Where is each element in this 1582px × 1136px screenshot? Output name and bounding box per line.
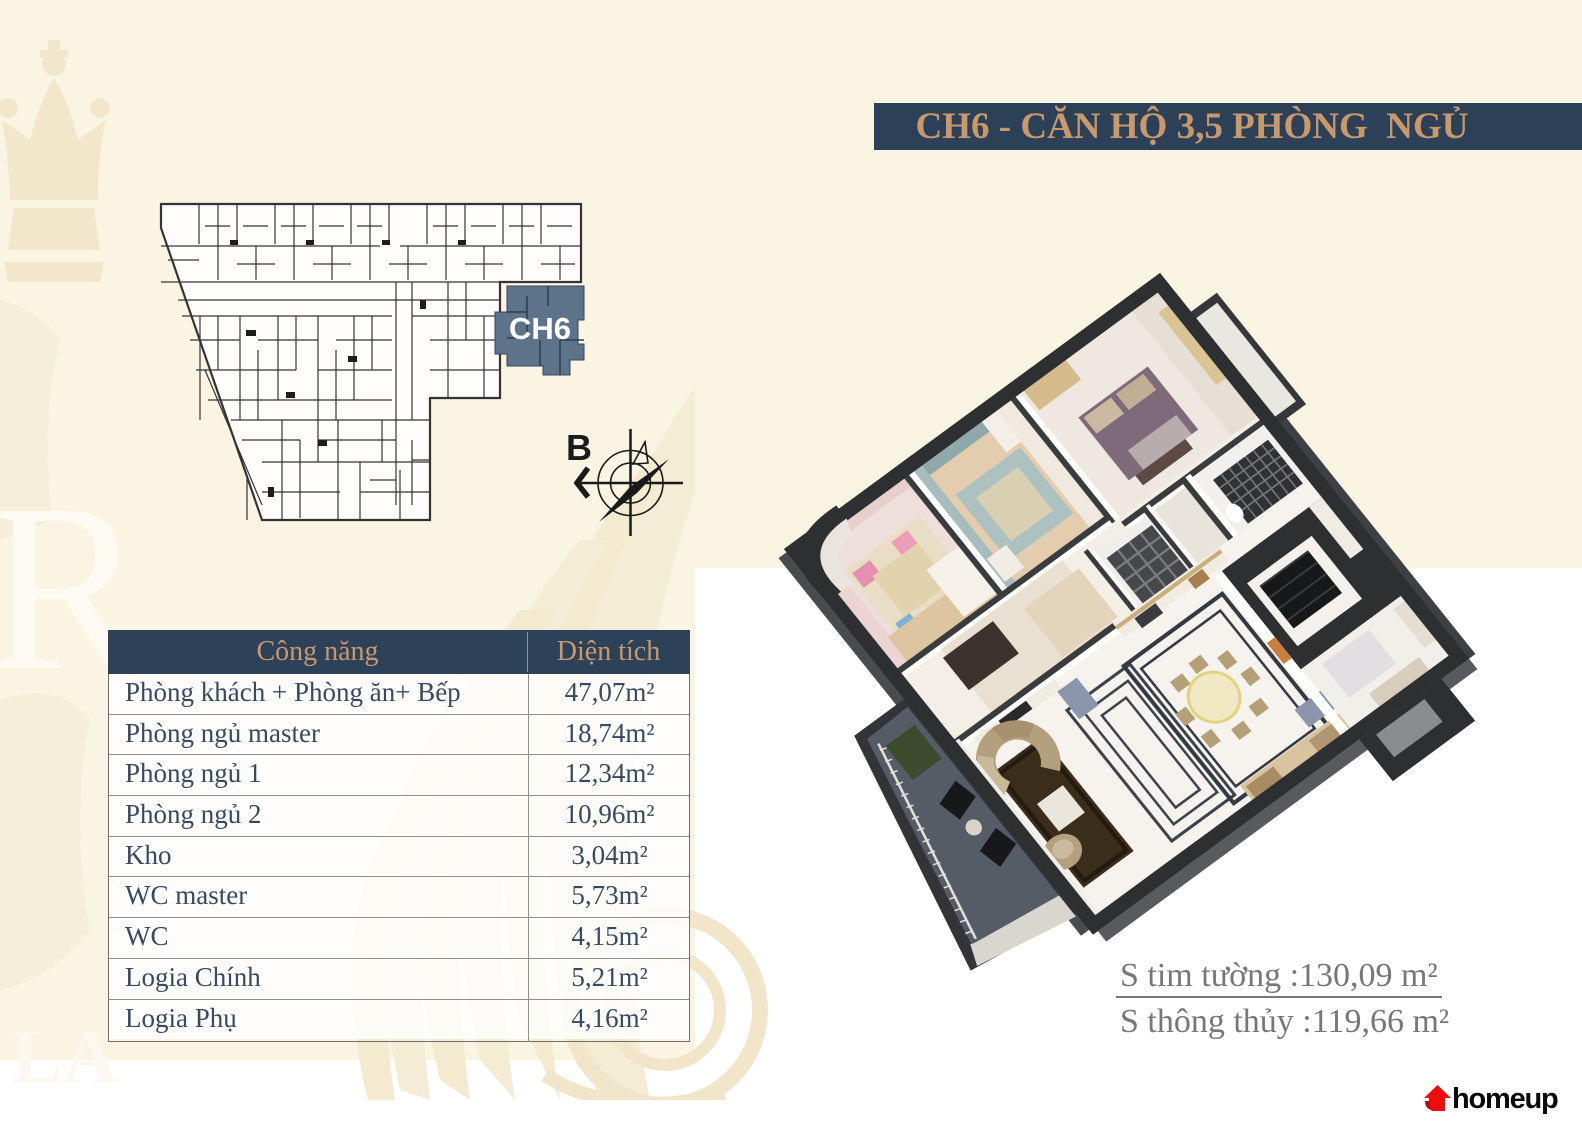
- svg-text:LA: LA: [12, 1015, 118, 1099]
- svg-text:CH6: CH6: [509, 311, 571, 346]
- svg-text:B: B: [566, 427, 592, 468]
